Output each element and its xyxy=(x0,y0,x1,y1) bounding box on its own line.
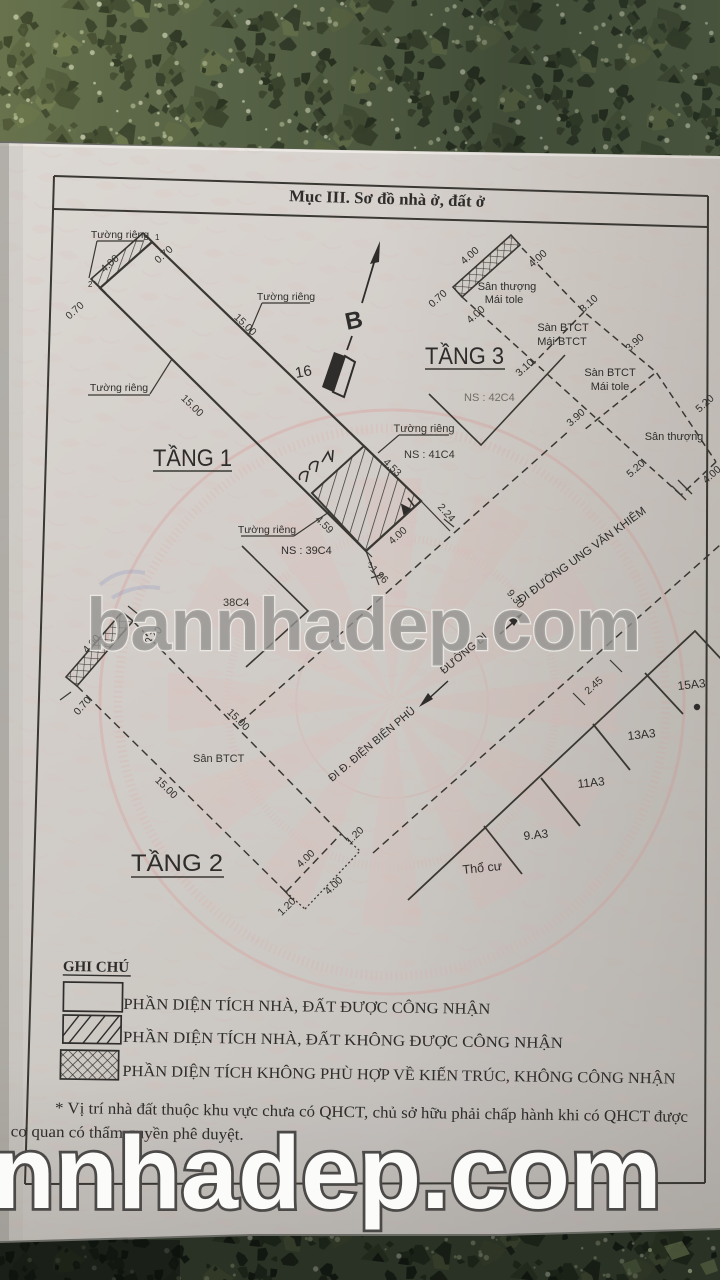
svg-text:16: 16 xyxy=(294,362,313,382)
svg-text:9.A3: 9.A3 xyxy=(523,826,549,843)
svg-text:Tường riêng: Tường riêng xyxy=(257,291,315,303)
svg-text:2: 2 xyxy=(88,280,93,289)
svg-text:15A3: 15A3 xyxy=(677,676,707,693)
svg-text:11A3: 11A3 xyxy=(577,774,606,791)
svg-text:3: 3 xyxy=(368,561,373,570)
svg-text:Mái tole: Mái tole xyxy=(485,294,524,306)
svg-text:TẦNG 3: TẦNG 3 xyxy=(425,342,504,370)
svg-text:Sàn BTCT: Sàn BTCT xyxy=(584,367,636,379)
svg-text:NS : 39C4: NS : 39C4 xyxy=(281,545,332,557)
svg-text:bannhadep.com: bannhadep.com xyxy=(86,583,640,666)
svg-text:Sân thượng: Sân thượng xyxy=(478,281,537,293)
svg-text:Mái tole: Mái tole xyxy=(591,381,630,393)
svg-text:Sân thượng: Sân thượng xyxy=(645,431,704,443)
svg-text:Tường riêng: Tường riêng xyxy=(91,229,149,241)
svg-text:NS : 41C4: NS : 41C4 xyxy=(404,449,455,461)
svg-text:Tường riêng: Tường riêng xyxy=(90,382,148,394)
svg-text:1: 1 xyxy=(155,233,160,242)
svg-text:Mái BTCT: Mái BTCT xyxy=(537,336,587,348)
svg-text:13A3: 13A3 xyxy=(627,726,657,743)
svg-text:Tường riêng: Tường riêng xyxy=(393,423,454,435)
svg-text:TẦNG 2: TẦNG 2 xyxy=(131,849,223,877)
svg-text:Sàn BTCT: Sàn BTCT xyxy=(537,322,589,334)
svg-text:Tường riêng: Tường riêng xyxy=(238,524,296,536)
svg-text:NS : 42C4: NS : 42C4 xyxy=(464,392,515,404)
svg-text:nnhadep.com: nnhadep.com xyxy=(0,1115,662,1230)
svg-text:GHI CHÚ: GHI CHÚ xyxy=(63,958,130,976)
svg-text:Sân BTCT: Sân BTCT xyxy=(193,753,245,765)
svg-text:TẦNG 1: TẦNG 1 xyxy=(153,444,232,472)
